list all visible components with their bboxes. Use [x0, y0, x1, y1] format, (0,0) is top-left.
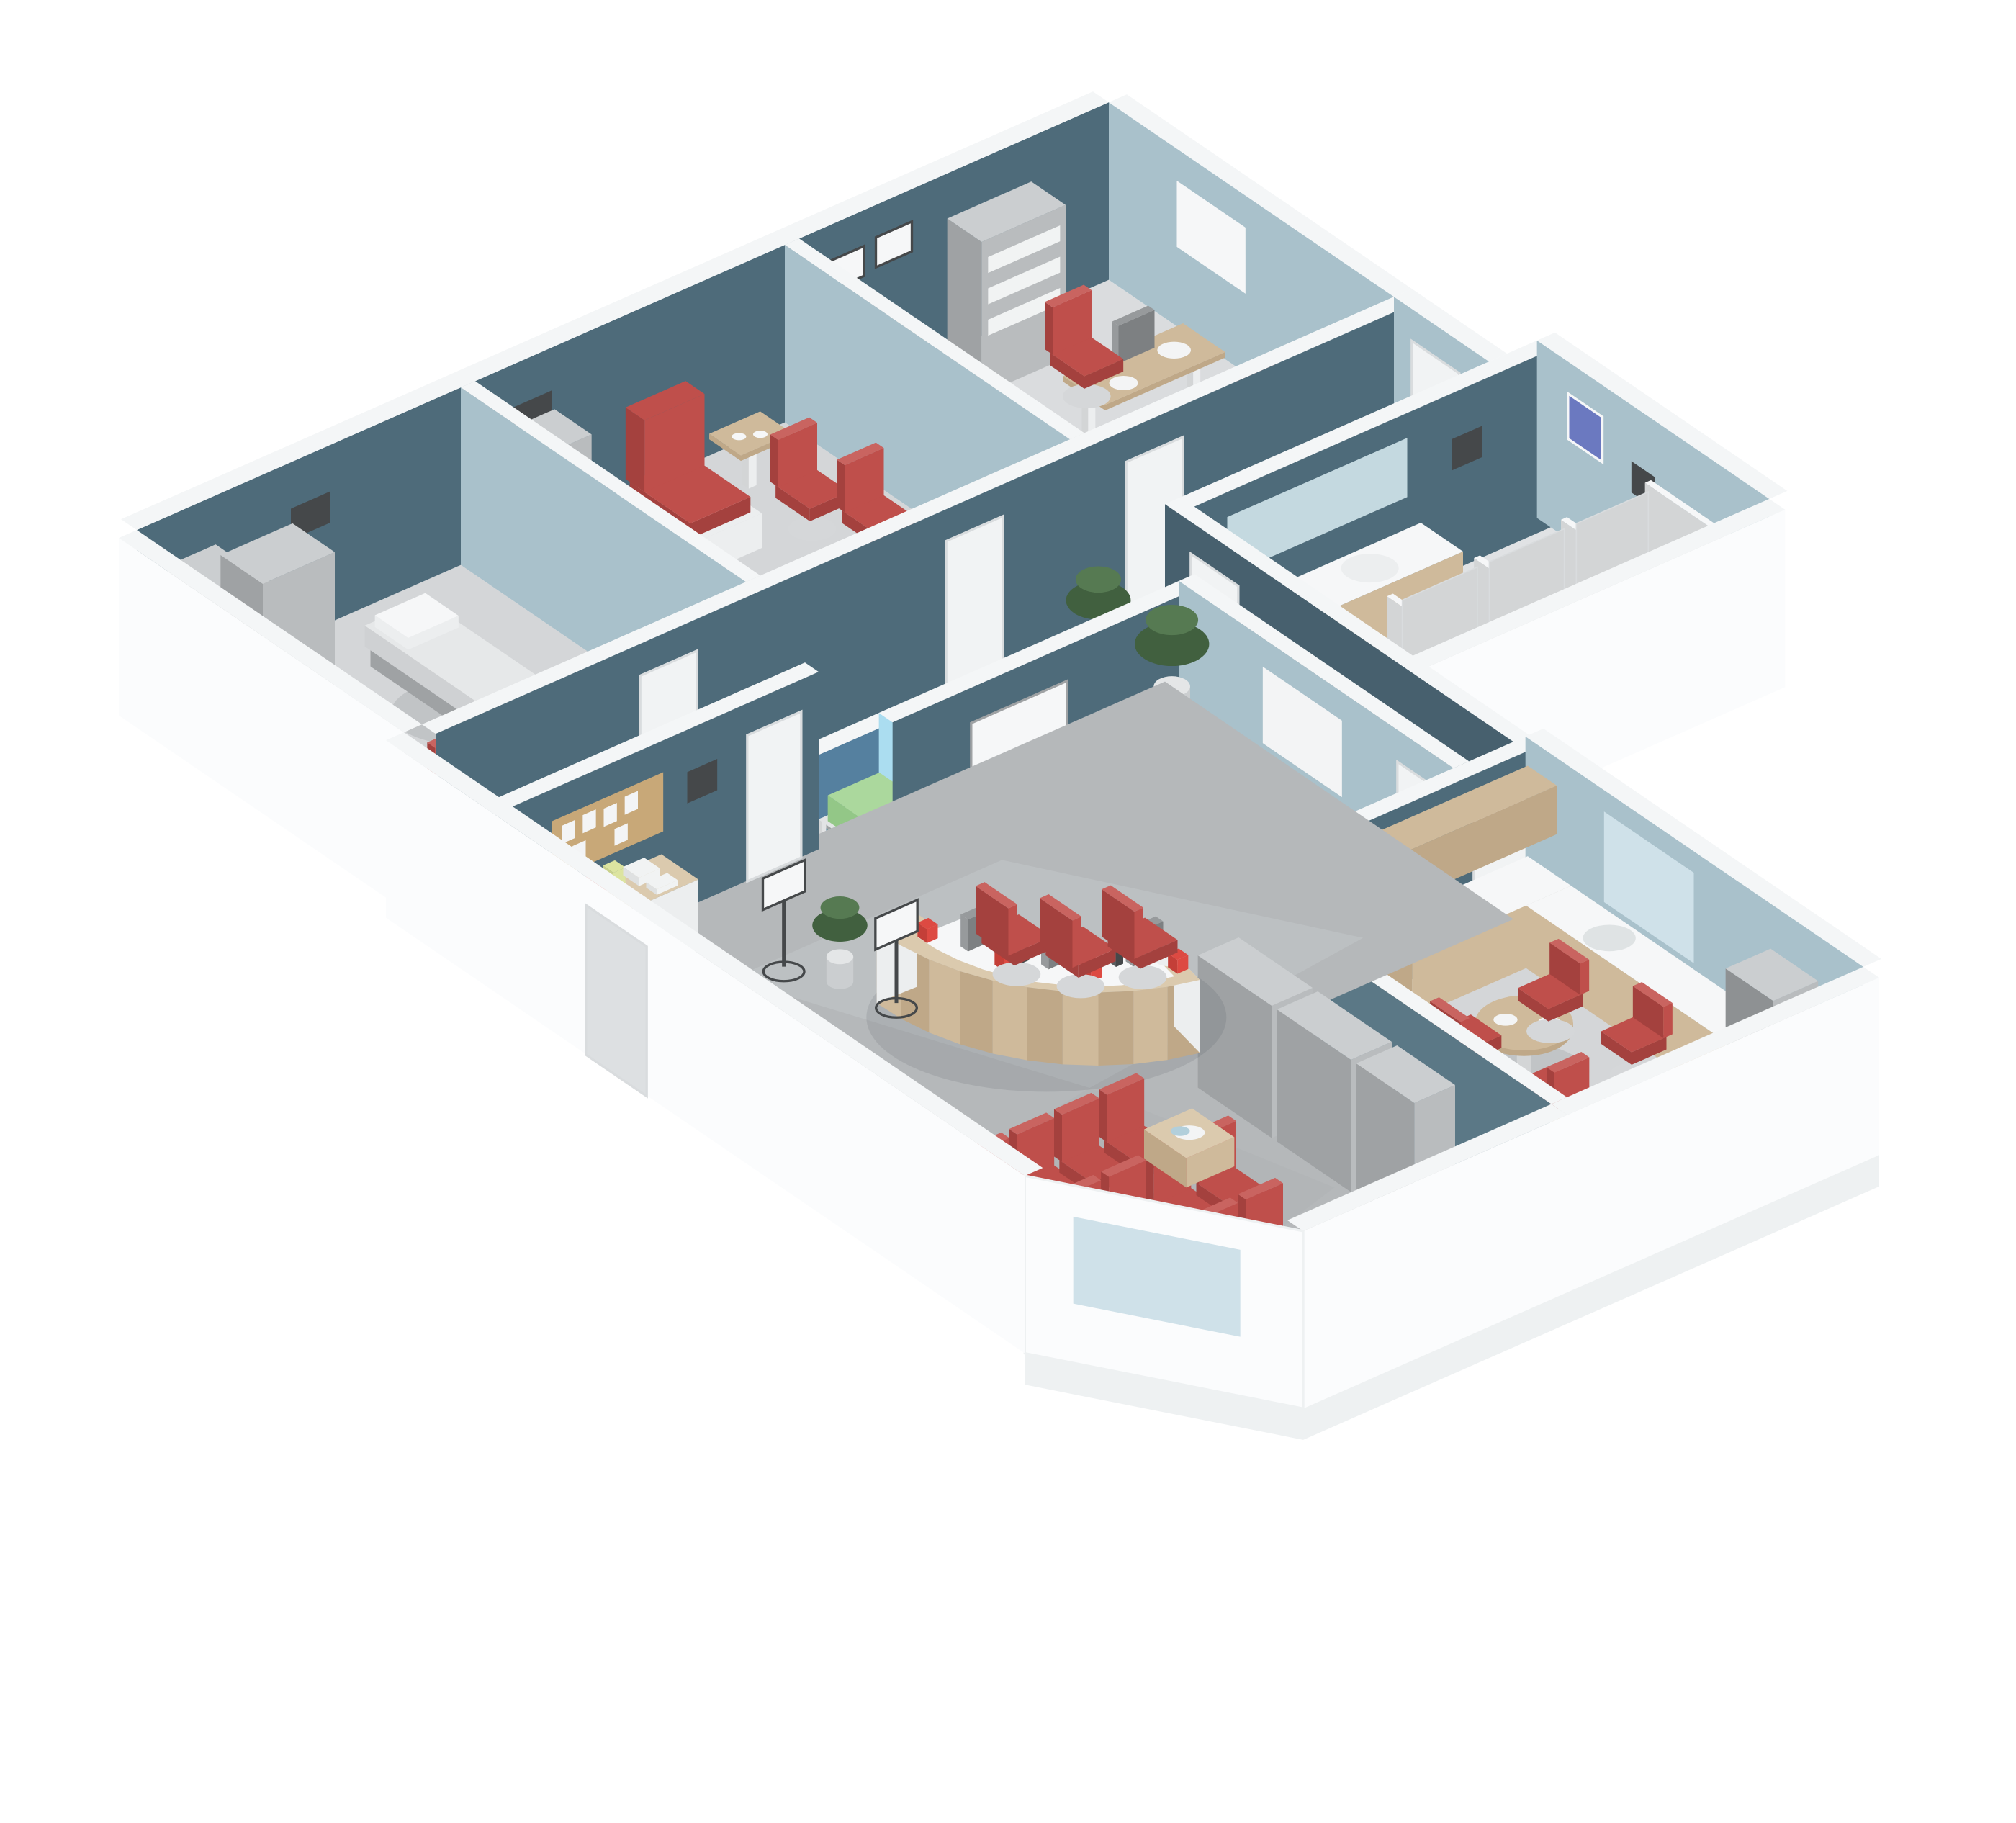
recliner-back [626, 408, 644, 492]
reception-chair-base [1057, 974, 1105, 998]
reception-counter-band [1063, 991, 1099, 1066]
reception-chair-base [993, 962, 1041, 986]
break-chair-base [1526, 1019, 1575, 1043]
visitor-chair-exam2-back [770, 435, 778, 487]
break-chair-back [1580, 960, 1590, 995]
reception-counter-band [929, 960, 960, 1045]
reception-counter-band [1099, 991, 1134, 1066]
plant-reception-pot [827, 949, 853, 964]
kitchen-sink [1583, 925, 1636, 952]
waiting-chair-back [1099, 1089, 1107, 1142]
break-chair-back [1663, 1003, 1673, 1038]
visitor-chair-exam2-base [788, 517, 837, 541]
papers-desk [1157, 342, 1191, 359]
cup-side-table [753, 431, 768, 438]
papers-desk [1110, 376, 1138, 390]
isometric-clinic-scene [29, 12, 2016, 1811]
reception-chair-back [1135, 908, 1144, 959]
reception-counter-band [993, 981, 1027, 1061]
waiting-chair-back [1054, 1109, 1062, 1162]
plant-passage-leaves [1146, 605, 1198, 635]
reception-chair-base [1119, 965, 1167, 989]
reception-chair-back [1009, 904, 1018, 955]
sink-basin [1341, 554, 1399, 582]
cup-side-table [732, 433, 746, 440]
reception-counter-band [1027, 987, 1063, 1064]
task-chair-office-base [1063, 384, 1111, 408]
task-chair-office-back [1045, 302, 1053, 354]
reception-monitor [960, 914, 968, 951]
plant-corridor-leaves [1076, 567, 1121, 593]
papers-table [1493, 1014, 1517, 1026]
reception-chair-back [1073, 917, 1082, 968]
door-exam2 [946, 516, 1003, 688]
door-hall-corridor [747, 711, 801, 881]
reception-counter-band [960, 971, 993, 1054]
visitor-chair-exam2-back [837, 460, 845, 513]
reception-counter-band [1133, 987, 1167, 1064]
magazine [1171, 1126, 1190, 1135]
floorplan-render: 3D floor plan rendering of a medical cli… [29, 12, 2016, 1811]
plant-reception-leaves [821, 896, 860, 919]
